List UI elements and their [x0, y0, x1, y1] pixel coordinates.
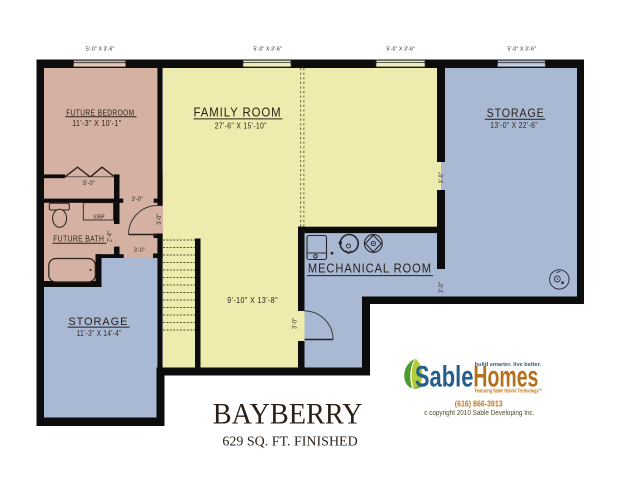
svg-text:2'-4": 2'-4" [107, 231, 113, 242]
svg-text:V36P: V36P [93, 214, 105, 220]
svg-text:FUTURE BEDROOM: FUTURE BEDROOM [66, 108, 134, 117]
svg-text:5'-0" X 3'-6": 5'-0" X 3'-6" [86, 47, 115, 53]
svg-text:3'-0": 3'-0" [134, 248, 145, 254]
svg-text:5'-0": 5'-0" [83, 181, 95, 187]
svg-text:3'-0": 3'-0" [293, 318, 299, 329]
svg-text:5'-0" X 3'-6": 5'-0" X 3'-6" [508, 47, 537, 53]
svg-text:MECHANICAL ROOM: MECHANICAL ROOM [308, 262, 432, 276]
svg-text:13'-0" X 22'-6": 13'-0" X 22'-6" [490, 121, 538, 130]
svg-text:27'-6" X 15'-10": 27'-6" X 15'-10" [215, 122, 267, 131]
svg-text:Sable: Sable [415, 361, 474, 394]
svg-text:11'-3" X 10'-1": 11'-3" X 10'-1" [72, 119, 121, 128]
svg-text:3'-0": 3'-0" [132, 197, 143, 203]
svg-text:STORAGE: STORAGE [487, 106, 545, 120]
svg-text:STORAGE: STORAGE [68, 316, 128, 328]
svg-text:Featuring Sable Hybrid Technol: Featuring Sable Hybrid Technology™ [475, 388, 543, 394]
svg-text:BAYBERRY: BAYBERRY [213, 397, 363, 430]
svg-text:build smarter. live better.: build smarter. live better. [475, 362, 542, 368]
svg-text:FAMILY ROOM: FAMILY ROOM [194, 105, 282, 119]
svg-text:FUTURE BATH: FUTURE BATH [53, 233, 104, 243]
svg-text:5'-0" X 3'-6": 5'-0" X 3'-6" [387, 47, 416, 53]
svg-text:c copyright 2010 Sable Develop: c copyright 2010 Sable Developing Inc. [424, 408, 534, 417]
svg-text:5'-0" X 3'-6": 5'-0" X 3'-6" [254, 47, 283, 53]
svg-text:3'-0": 3'-0" [439, 172, 445, 183]
svg-text:3'-0": 3'-0" [157, 214, 163, 225]
svg-text:3'-0": 3'-0" [439, 282, 445, 293]
svg-text:11'-3" X 14'-4": 11'-3" X 14'-4" [77, 329, 122, 338]
svg-text:629 SQ. FT. FINISHED: 629 SQ. FT. FINISHED [222, 433, 358, 448]
svg-text:9'-10" X 13'-8": 9'-10" X 13'-8" [227, 296, 278, 305]
